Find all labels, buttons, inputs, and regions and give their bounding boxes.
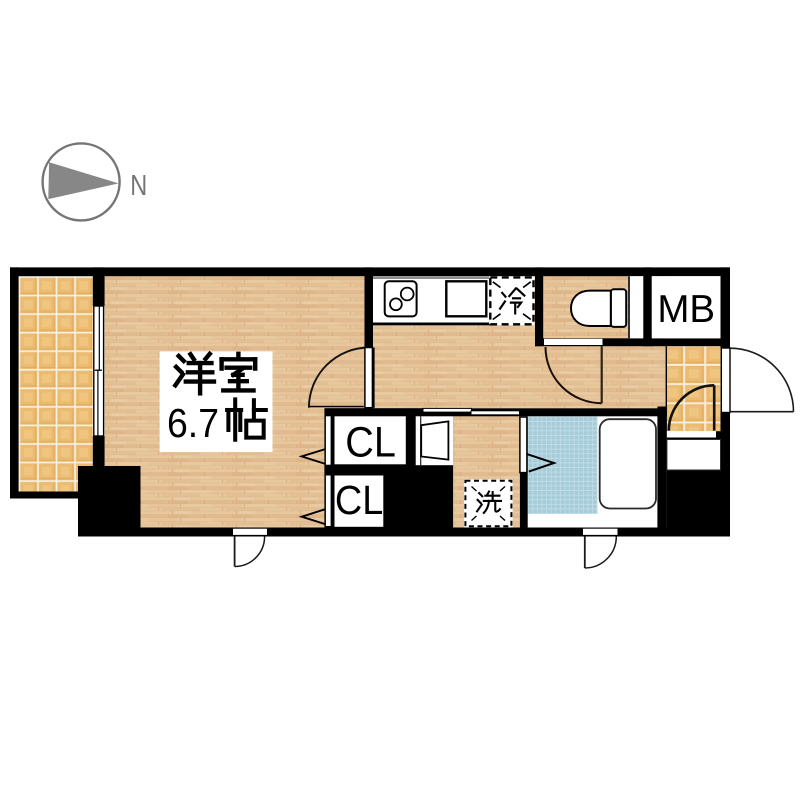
svg-text:MB: MB	[657, 288, 715, 331]
svg-text:6.7: 6.7	[167, 400, 219, 446]
svg-text:CL: CL	[335, 477, 383, 523]
svg-text:CL: CL	[345, 419, 396, 466]
svg-text:N: N	[130, 170, 147, 202]
